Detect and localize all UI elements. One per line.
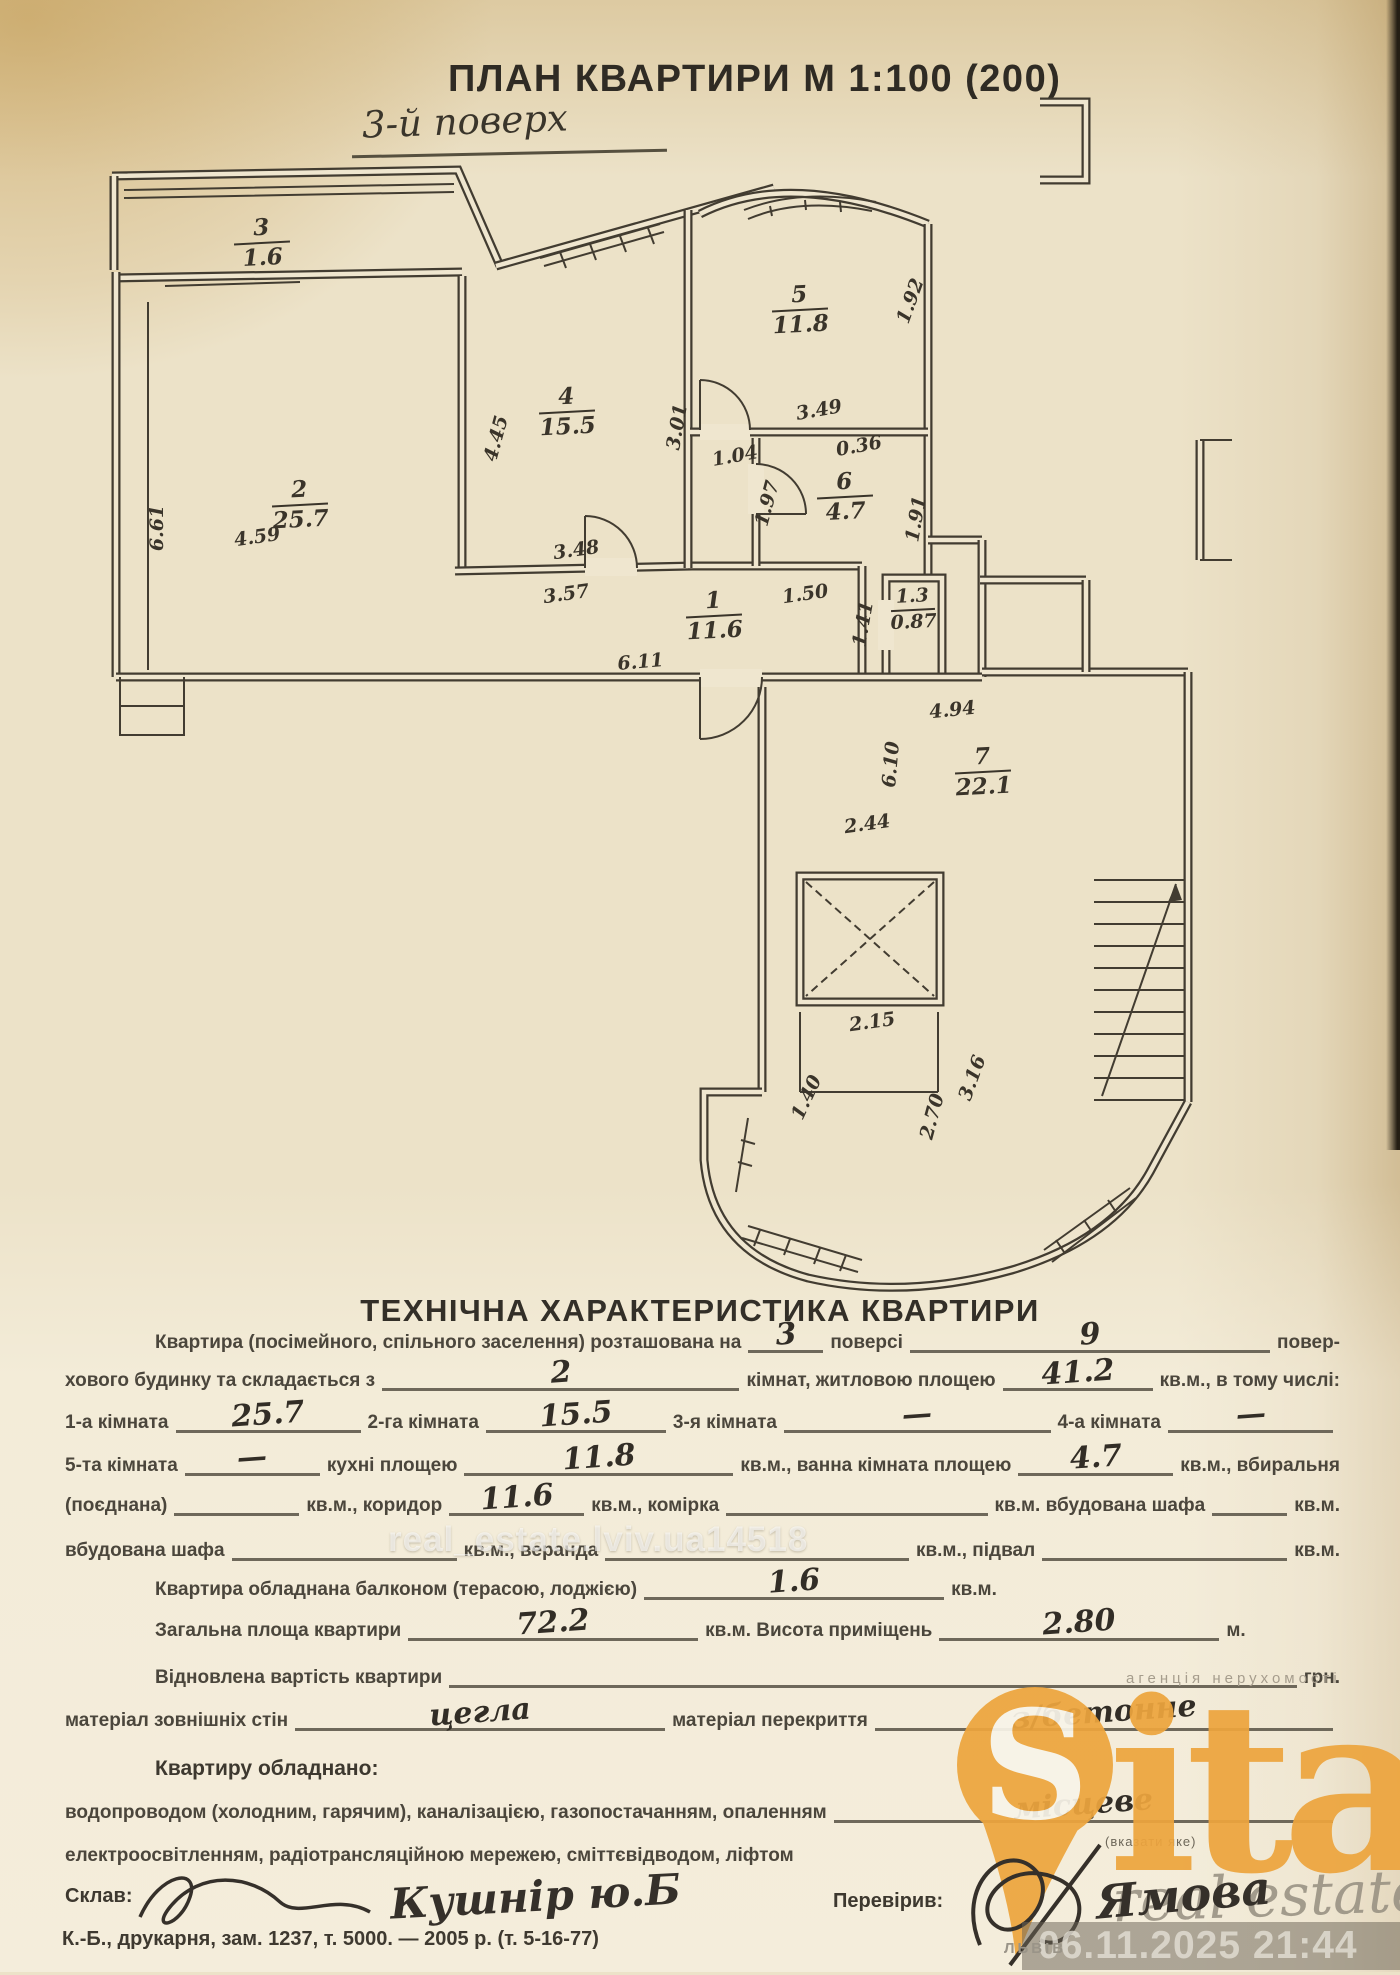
handwritten-value: 2 <box>549 1357 572 1388</box>
form-text: матеріал зовнішніх стін <box>65 1710 288 1734</box>
form-text: кв.м., в тому числі: <box>1160 1370 1340 1394</box>
handwritten-value: 9 <box>1078 1319 1101 1350</box>
handwritten-value: — <box>1234 1399 1266 1431</box>
form-text: водопроводом (холодним, гарячим), каналі… <box>65 1802 827 1826</box>
form-blank: — <box>1168 1422 1333 1433</box>
handwritten-value: 11.8 <box>561 1440 636 1475</box>
form-blank <box>1212 1505 1287 1516</box>
form-blank: 25.7 <box>176 1422 361 1433</box>
checker-label: Перевірив: <box>833 1890 943 1913</box>
form-text: Відновлена вартість квартири <box>155 1667 442 1691</box>
timestamp-text: 06.11.2025 21:44 <box>1022 1922 1400 1970</box>
form-line-4: (поєднана)кв.м., коридор11.6кв.м., комір… <box>65 1495 1340 1519</box>
form-text: хового будинку та складається з <box>65 1370 375 1394</box>
form-blank: 72.2 <box>408 1630 698 1641</box>
form-blank: цегла <box>295 1720 665 1731</box>
form-text: кв.м. <box>1294 1540 1340 1564</box>
form-text: кв.м., ванна кімната площею <box>740 1455 1011 1479</box>
form-line-0: Квартира (посімейного, спільного заселен… <box>155 1332 1340 1356</box>
handwritten-value: 41.2 <box>1040 1355 1115 1390</box>
form-text: 2-га кімната <box>368 1412 479 1436</box>
form-blank: 15.5 <box>486 1422 666 1433</box>
form-text: поверсі <box>830 1332 903 1356</box>
scanned-apartment-plan-document: { "header": { "title": "ПЛАН КВАРТИРИ М … <box>0 0 1400 1972</box>
form-text: матеріал перекриття <box>672 1710 868 1734</box>
form-text: 3-я кімната <box>673 1412 777 1436</box>
form-text: 1-а кімната <box>65 1412 169 1436</box>
form-text: вбудована шафа <box>65 1540 225 1564</box>
form-text: кв.м., комірка <box>591 1495 719 1519</box>
form-blank: 2 <box>382 1380 739 1391</box>
form-blank: 9 <box>910 1342 1270 1353</box>
form-blank: 41.2 <box>1003 1380 1153 1391</box>
form-text: 5-та кімната <box>65 1455 178 1479</box>
form-line-2: 1-а кімната25.72-га кімната15.53-я кімна… <box>65 1412 1340 1436</box>
form-text: Квартира (посімейного, спільного заселен… <box>155 1332 741 1356</box>
form-line-6: Квартира обладнана балконом (терасою, ло… <box>155 1579 997 1603</box>
form-text: кв.м., підвал <box>916 1540 1035 1564</box>
form-text: Загальна площа квартири <box>155 1620 401 1644</box>
handwritten-value: 1.6 <box>767 1565 821 1599</box>
handwritten-value: цегла <box>428 1694 531 1731</box>
form-blank: 11.6 <box>449 1505 584 1516</box>
handwritten-value: 11.6 <box>479 1480 554 1515</box>
form-text: кімнат, житловою площею <box>746 1370 995 1394</box>
form-blank: — <box>784 1422 1051 1433</box>
form-blank: 2.80 <box>939 1630 1219 1641</box>
form-blank: 11.8 <box>464 1465 733 1476</box>
form-text: м. <box>1226 1620 1245 1644</box>
handwritten-value: — <box>901 1399 933 1431</box>
form-line-3: 5-та кімната—кухні площею11.8кв.м., ванн… <box>65 1455 1340 1479</box>
handwritten-value: 72.2 <box>516 1605 591 1640</box>
form-blank: 1.6 <box>644 1589 944 1600</box>
form-text: кв.м. Висота приміщень <box>705 1620 932 1644</box>
form-blank <box>174 1505 299 1516</box>
form-text: Квартира обладнана балконом (терасою, ло… <box>155 1579 637 1603</box>
form-line-10: Квартиру обладнано: <box>155 1757 378 1783</box>
form-blank <box>1042 1550 1287 1561</box>
handwritten-value: 3 <box>774 1319 797 1350</box>
composer-label: Склав: <box>65 1885 132 1908</box>
form-text: кухні площею <box>327 1455 458 1479</box>
form-blank: 3 <box>748 1342 823 1353</box>
handwritten-value: 4.7 <box>1069 1441 1123 1475</box>
handwritten-value: 15.5 <box>538 1397 613 1432</box>
form-text: Квартиру обладнано: <box>155 1757 378 1783</box>
handwritten-value: 25.7 <box>231 1397 306 1432</box>
form-text: кв.м. вбудована шафа <box>995 1495 1206 1519</box>
form-line-1: хового будинку та складається з2кімнат, … <box>65 1370 1340 1394</box>
form-text: кв.м. <box>1294 1495 1340 1519</box>
form-blank: 4.7 <box>1018 1465 1173 1476</box>
form-blank: — <box>185 1465 320 1476</box>
form-line-7: Загальна площа квартири72.2кв.м. Висота … <box>155 1620 1246 1644</box>
handwritten-value: — <box>236 1442 268 1474</box>
form-text: кв.м. <box>951 1579 997 1603</box>
handwritten-value: 2.80 <box>1042 1605 1117 1640</box>
form-blank <box>726 1505 987 1516</box>
form-text: (поєднана) <box>65 1495 167 1519</box>
print-footer: К.-Б., друкарня, зам. 1237, т. 5000. — 2… <box>62 1928 599 1951</box>
form-text: кв.м., коридор <box>306 1495 442 1519</box>
timestamp-band: 06.11.2025 21:44 <box>1022 1922 1400 1970</box>
form-text: повер- <box>1277 1332 1340 1356</box>
watermark-center-text: real_estate.lviv.ua14518 <box>388 1520 808 1560</box>
watermark-city: ЛЬВІВ <box>1004 1940 1066 1957</box>
form-text: 4-а кімната <box>1058 1412 1162 1436</box>
form-text: кв.м., вбиральня <box>1180 1455 1340 1479</box>
